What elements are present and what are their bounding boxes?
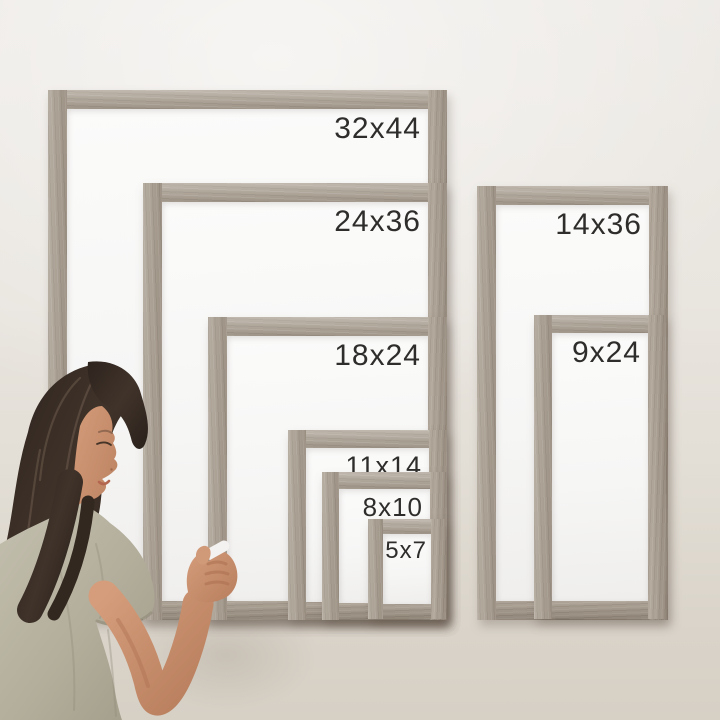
- frame-rail-top: [339, 472, 430, 489]
- frame-rail-bottom: [383, 604, 431, 619]
- frame-rail-right: [648, 315, 666, 619]
- frame-5x7: 5x7: [368, 519, 446, 619]
- size-label-8x10: 8x10: [363, 494, 423, 520]
- frame-rail-left: [534, 315, 552, 619]
- woman-figure: [0, 330, 340, 720]
- frame-rail-bottom: [552, 601, 648, 619]
- frame-rail-right: [431, 519, 446, 619]
- frame-9x24: 9x24: [534, 315, 666, 619]
- frame-rail-left: [368, 519, 383, 619]
- frame-rail-left: [477, 186, 496, 620]
- whiteboard-surface: [552, 333, 648, 601]
- nostril-dot: [110, 468, 112, 470]
- frame-rail-top: [552, 315, 648, 333]
- size-label-9x24: 9x24: [572, 338, 641, 368]
- size-label-14x36: 14x36: [555, 210, 642, 240]
- size-label-18x24: 18x24: [334, 341, 421, 371]
- frame-rail-top: [496, 186, 649, 205]
- size-label-32x44: 32x44: [334, 114, 421, 144]
- frame-rail-top: [383, 519, 431, 534]
- product-photo-nested-whiteboard-frames: 32x44 24x36 18x24 11x14 8x10: [0, 0, 720, 720]
- frame-rail-top: [67, 90, 428, 109]
- frame-rail-top: [162, 183, 428, 202]
- size-label-24x36: 24x36: [334, 207, 421, 237]
- size-label-5x7: 5x7: [385, 539, 427, 563]
